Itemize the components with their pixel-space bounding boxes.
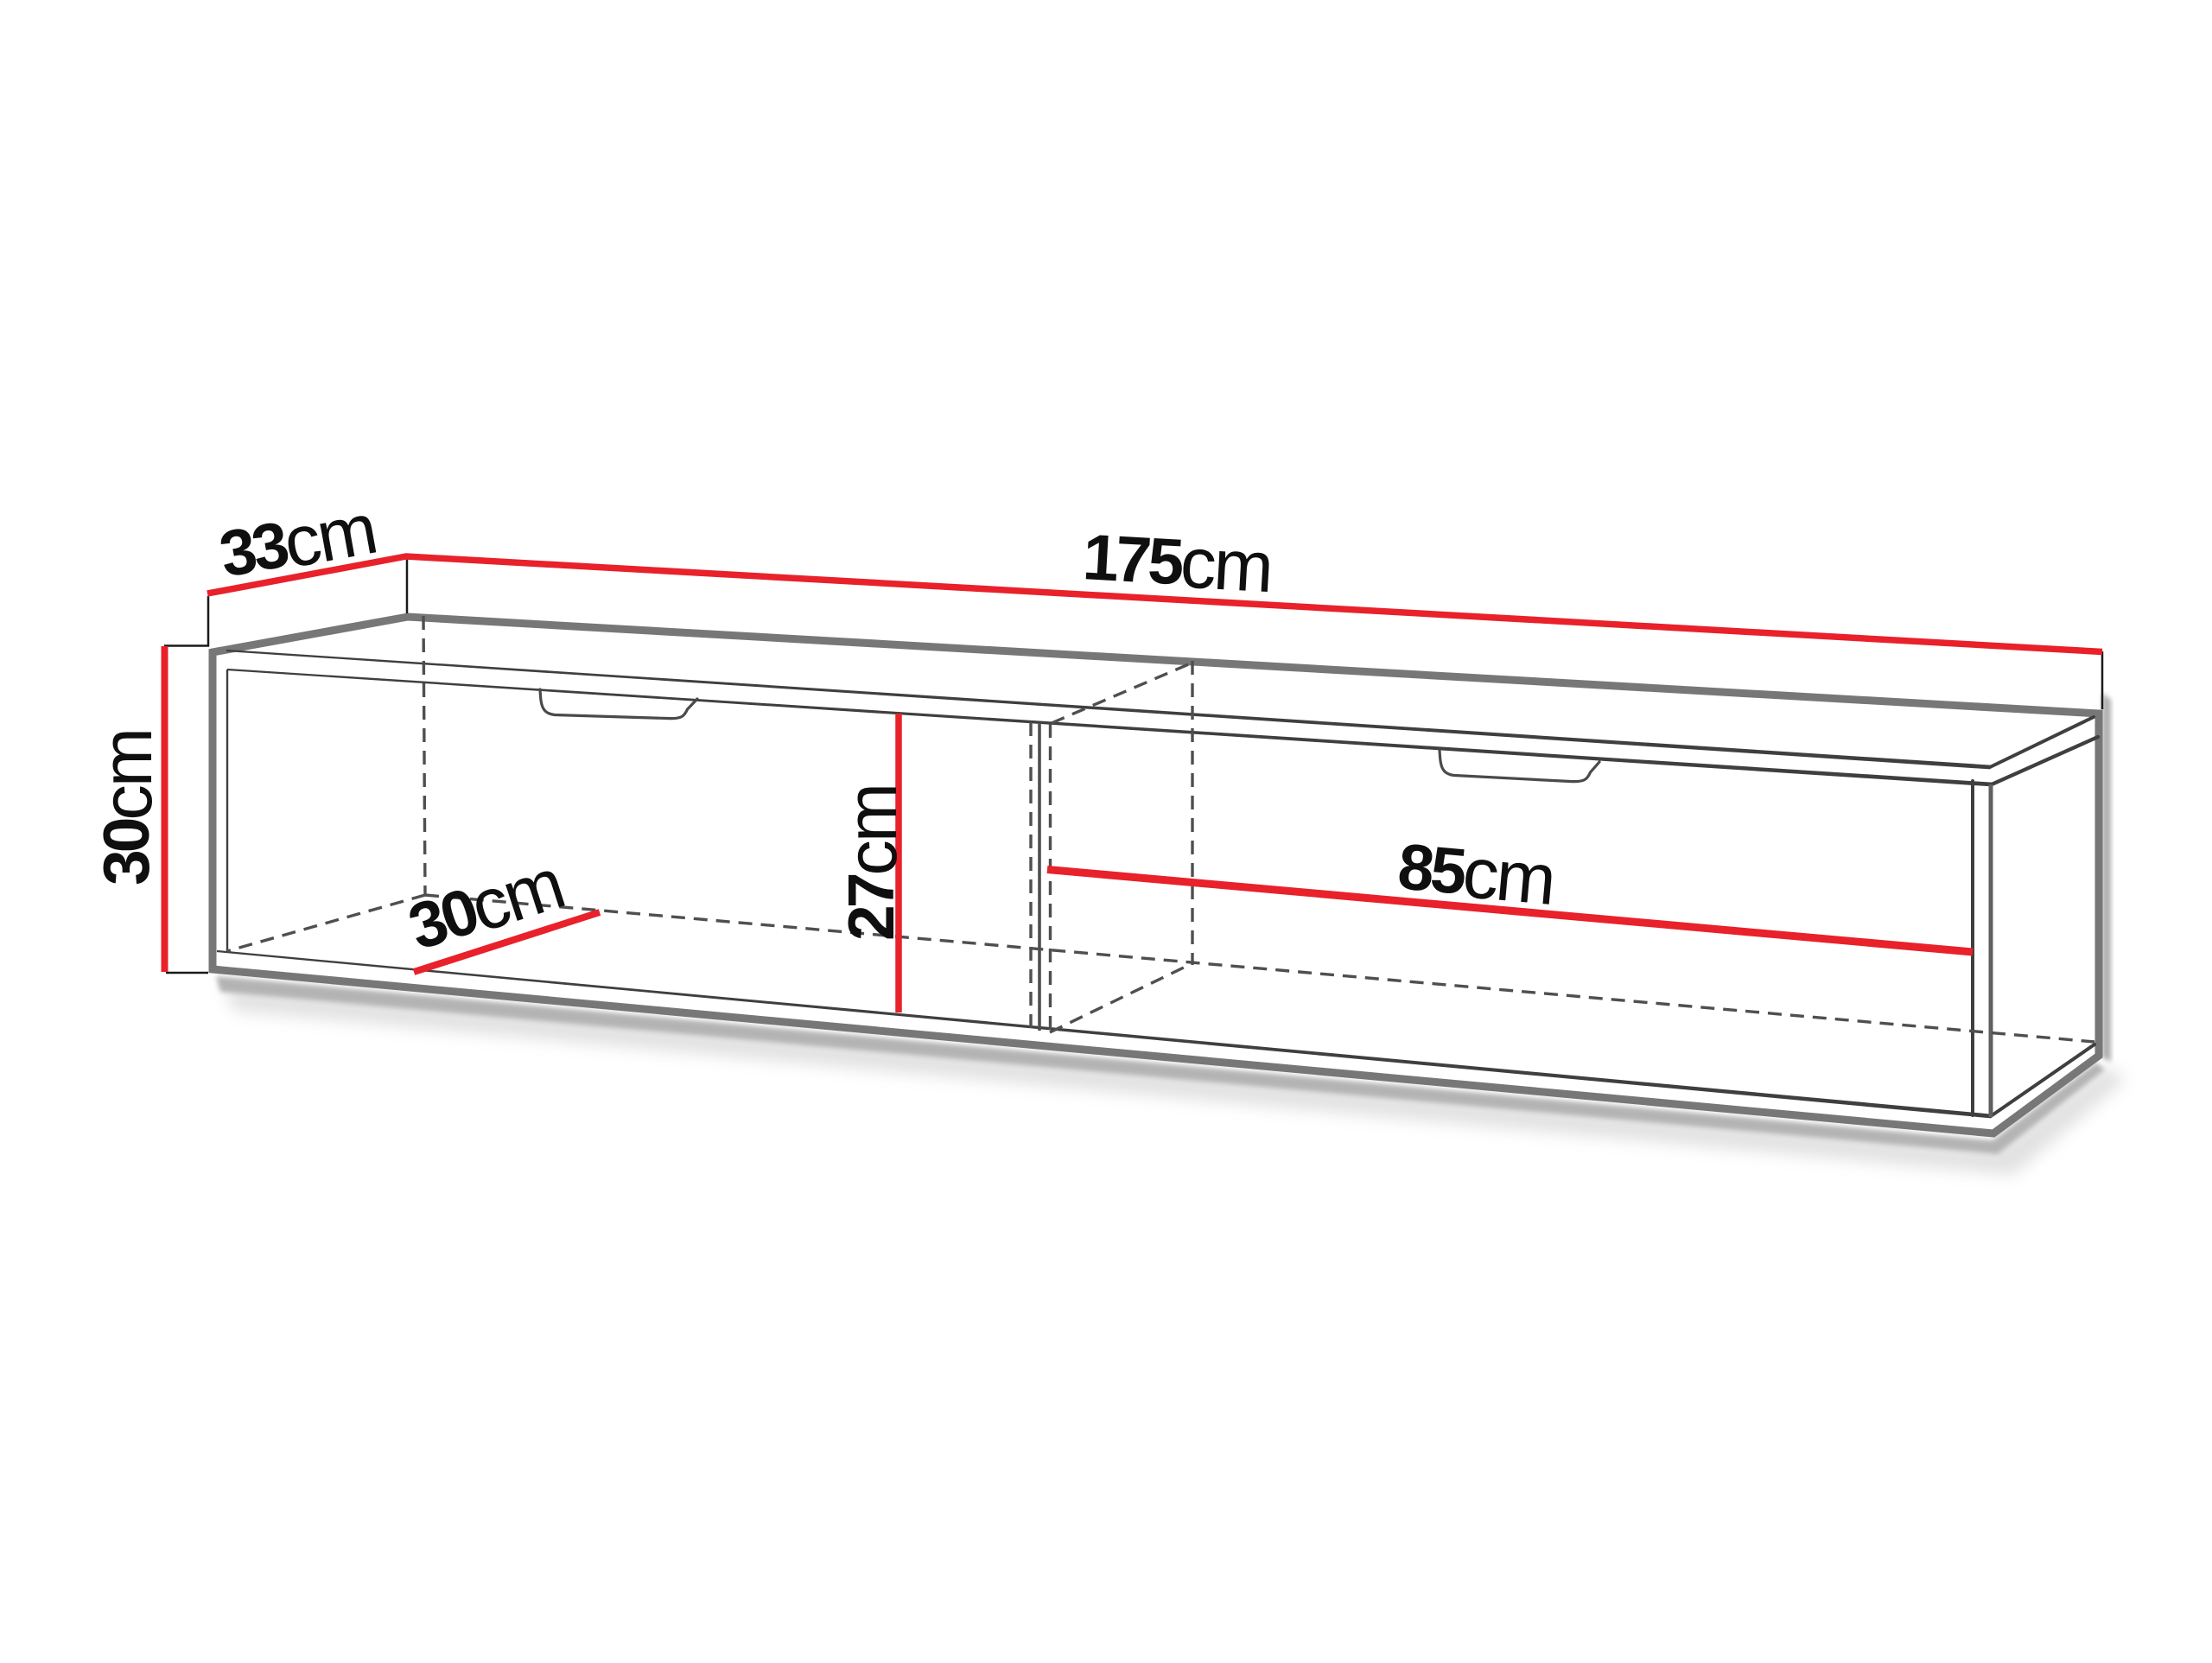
svg-text:33cm: 33cm <box>213 488 381 595</box>
svg-text:27cm: 27cm <box>831 785 912 941</box>
svg-text:30cm: 30cm <box>86 730 167 885</box>
svg-text:175cm: 175cm <box>1081 517 1274 607</box>
